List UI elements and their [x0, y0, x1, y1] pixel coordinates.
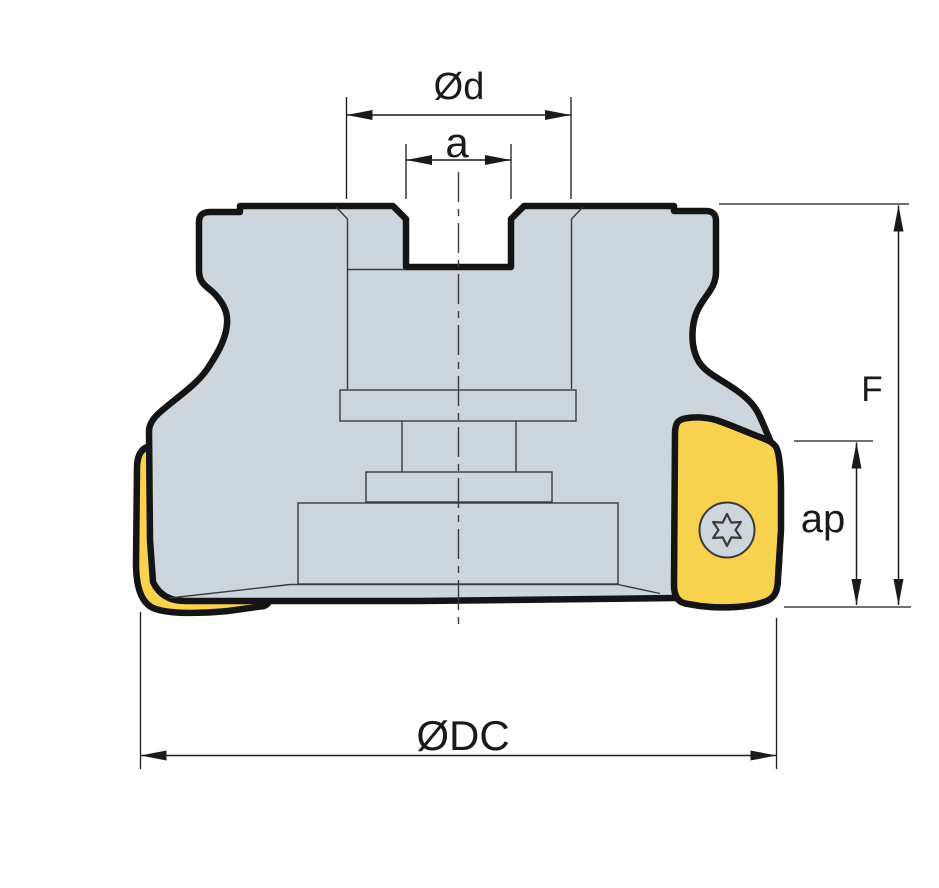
dim-cutting-diameter: ØDC [141, 612, 777, 769]
dim-label-slot-width: a [445, 119, 469, 166]
dim-label-bore-diameter: Ød [434, 66, 485, 108]
screw-head [700, 503, 755, 558]
dim-label-cutting-diameter: ØDC [416, 712, 509, 759]
dim-label-depth-of-cut: ap [801, 497, 846, 541]
dim-label-height: F [861, 370, 882, 409]
dim-depth-of-cut: ap [794, 441, 873, 605]
technical-drawing-canvas: Ød a F ap ØDC [0, 0, 939, 888]
milling-cutter-diagram: Ød a F ap ØDC [0, 0, 939, 888]
cutter-body-group [136, 172, 781, 630]
insert-screw [700, 503, 755, 558]
